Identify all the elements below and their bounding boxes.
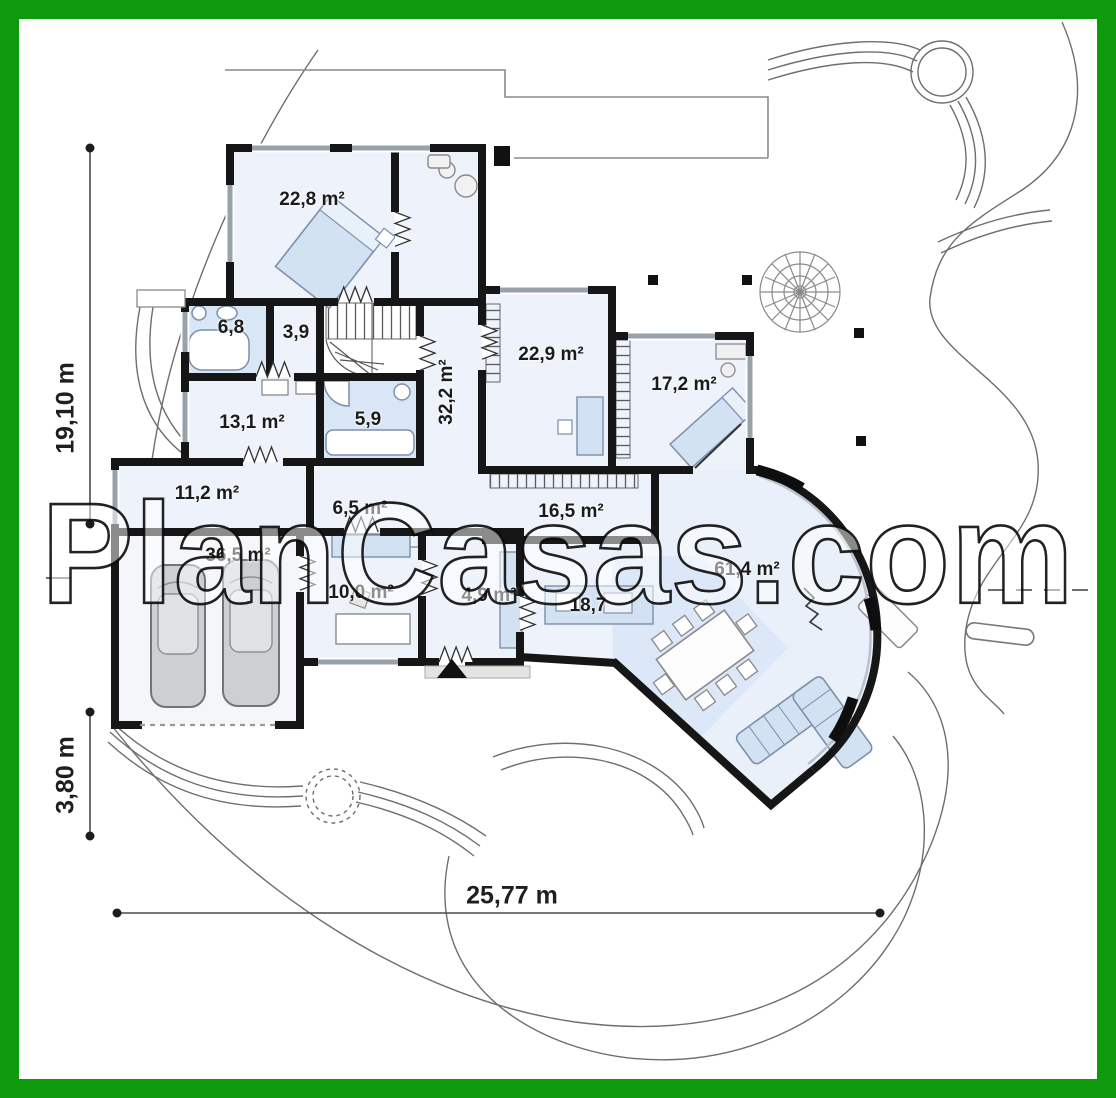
window-box bbox=[137, 290, 185, 307]
spiral-stair-icon bbox=[760, 252, 840, 332]
floor-plan-drawing bbox=[0, 0, 1116, 1098]
garden-bench-icon bbox=[965, 622, 1034, 646]
floor-plan-page: 22,8 m²6,83,932,2 m²22,9 m²17,2 m²13,1 m… bbox=[0, 0, 1116, 1098]
car-icon bbox=[223, 560, 279, 706]
car-icon bbox=[151, 565, 205, 707]
